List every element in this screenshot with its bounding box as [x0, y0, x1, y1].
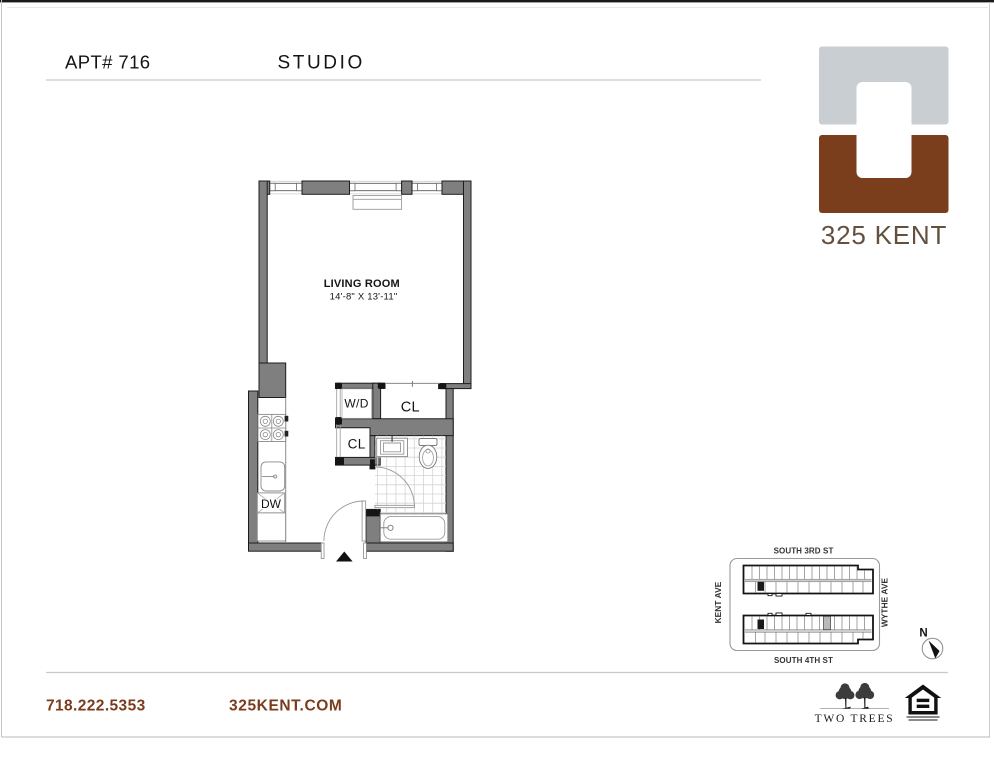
svg-text:LIVING ROOM: LIVING ROOM — [324, 278, 400, 290]
svg-text:STUDIO: STUDIO — [278, 53, 365, 74]
svg-text:SOUTH 3RD ST: SOUTH 3RD ST — [774, 547, 834, 556]
svg-text:N: N — [919, 628, 927, 640]
svg-text:KENT AVE: KENT AVE — [713, 581, 723, 623]
svg-text:14'-8" X 13'-11": 14'-8" X 13'-11" — [330, 291, 398, 302]
svg-text:TWO TREES: TWO TREES — [815, 713, 895, 725]
svg-text:CL: CL — [348, 437, 366, 452]
svg-text:WYTHE AVE: WYTHE AVE — [880, 577, 890, 627]
svg-text:325 KENT: 325 KENT — [821, 220, 947, 250]
svg-text:W/D: W/D — [344, 397, 369, 411]
svg-text:SOUTH 4TH ST: SOUTH 4TH ST — [774, 656, 833, 665]
svg-text:718.222.5353: 718.222.5353 — [46, 698, 146, 715]
svg-text:DW: DW — [261, 497, 282, 511]
svg-text:CL: CL — [401, 399, 420, 415]
svg-text:325KENT.COM: 325KENT.COM — [229, 698, 342, 715]
svg-text:APT# 716: APT# 716 — [65, 52, 150, 73]
